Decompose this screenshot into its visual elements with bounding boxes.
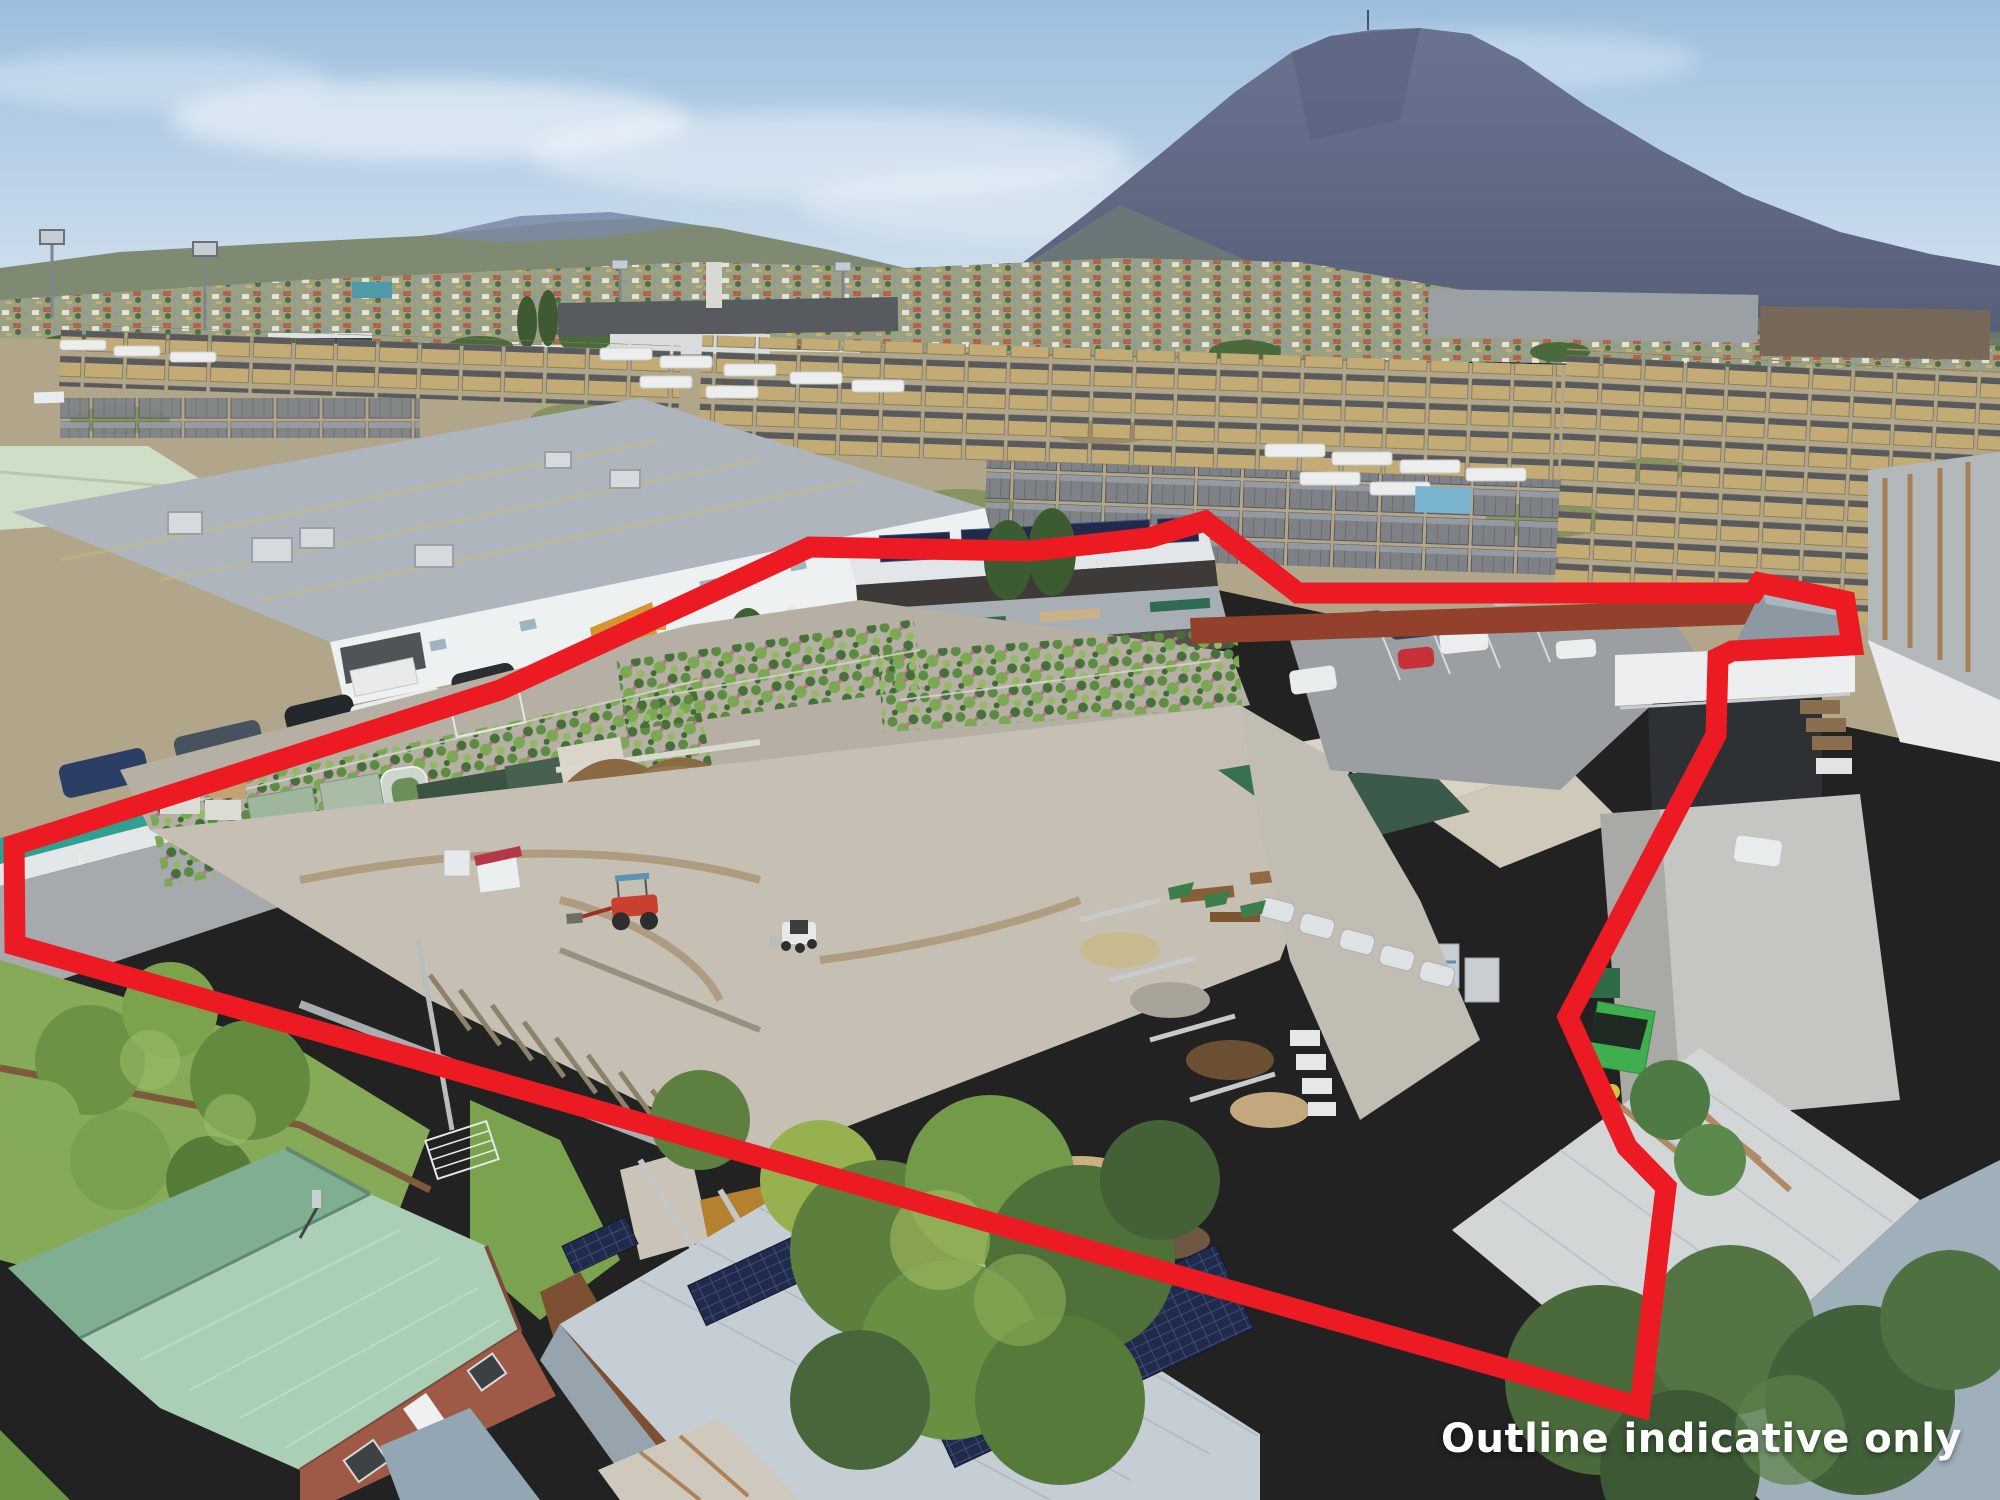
red-car — [1397, 646, 1435, 670]
warehouse-roof-far — [1428, 289, 1759, 343]
disclaimer-text: Outline indicative only — [1441, 1416, 1962, 1462]
ibc-tote — [444, 850, 470, 876]
timber-mill-shed — [558, 297, 899, 337]
small-truck — [34, 391, 64, 403]
silo — [706, 262, 722, 308]
teal-container — [352, 282, 392, 298]
chimney-flue — [312, 1190, 321, 1208]
blue-container — [1415, 486, 1472, 514]
aerial-photo: Outline indicative only — [0, 0, 2000, 1500]
car — [1555, 639, 1596, 660]
